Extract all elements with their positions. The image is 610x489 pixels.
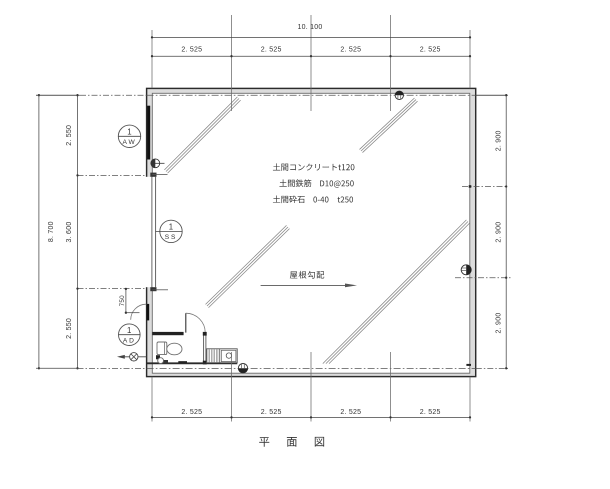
svg-text:2. 900: 2. 900 [495, 130, 502, 151]
svg-text:2. 900: 2. 900 [495, 313, 502, 334]
svg-text:AD: AD [123, 337, 136, 344]
svg-text:2. 525: 2. 525 [261, 409, 282, 416]
svg-text:750: 750 [119, 295, 126, 307]
svg-text:2. 550: 2. 550 [66, 125, 73, 146]
svg-text:2. 525: 2. 525 [420, 46, 441, 53]
svg-text:SS: SS [165, 234, 177, 241]
svg-text:3. 600: 3. 600 [66, 222, 73, 243]
svg-text:2. 550: 2. 550 [66, 318, 73, 339]
svg-text:2. 525: 2. 525 [420, 409, 441, 416]
svg-text:10. 100: 10. 100 [297, 24, 322, 31]
svg-text:8. 700: 8. 700 [48, 221, 55, 242]
svg-text:2. 900: 2. 900 [495, 222, 502, 243]
svg-text:AW: AW [123, 139, 137, 146]
svg-text:1: 1 [127, 326, 132, 335]
svg-text:2. 525: 2. 525 [340, 46, 361, 53]
svg-text:1: 1 [127, 128, 132, 137]
svg-text:2. 525: 2. 525 [181, 409, 202, 416]
svg-text:2. 525: 2. 525 [181, 46, 202, 53]
svg-text:1: 1 [169, 223, 174, 232]
svg-text:2. 525: 2. 525 [261, 46, 282, 53]
svg-text:2. 525: 2. 525 [340, 409, 361, 416]
